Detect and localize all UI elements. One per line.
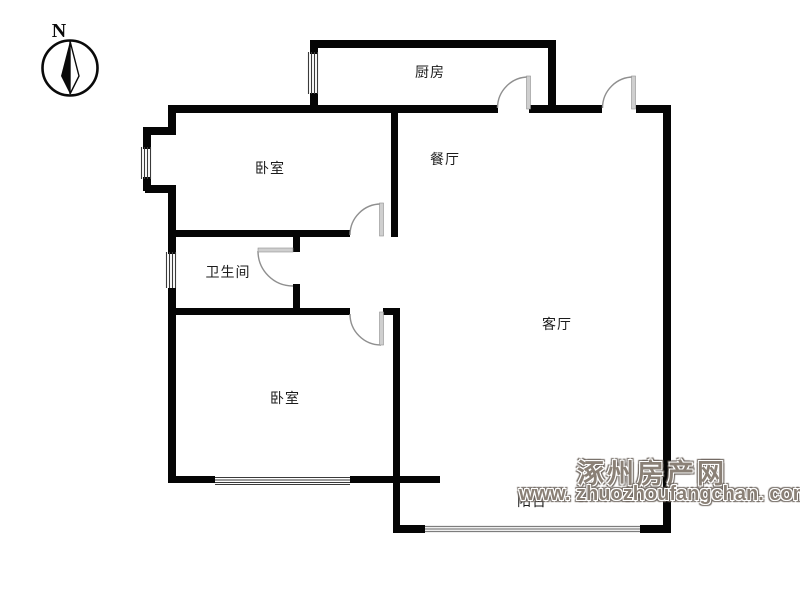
bathroom-door	[258, 248, 293, 286]
wall-kitchen-left-upper	[310, 40, 318, 54]
compass-needle-light-half	[70, 41, 79, 94]
wall-top-middle	[529, 105, 602, 113]
wall-bedroom-top-left-lower	[168, 185, 176, 235]
compass-icon: N	[43, 20, 98, 96]
wall-baywindow-left-upper	[143, 127, 151, 149]
watermark-site-url: www. zhuozhoufangchan. com	[519, 483, 800, 506]
bedroom-top-door	[350, 203, 384, 236]
wall-bathroom-right-lower	[293, 284, 300, 315]
bathroom-window	[167, 252, 176, 288]
entrance-door-leaf	[632, 76, 636, 109]
bedroom-bottom-door	[350, 312, 384, 345]
bedroom-top-bay-window	[142, 147, 151, 179]
balcony-window	[425, 527, 640, 532]
label-kitchen: 厨房	[415, 62, 445, 82]
compass-needle-dark-half	[61, 41, 70, 94]
wall-bathroom-bottom	[168, 308, 350, 315]
compass-north-label: N	[52, 20, 67, 42]
wall-left-lower	[168, 288, 176, 483]
floorplan-drawing: N	[0, 0, 800, 600]
bedroom-bottom-window	[215, 478, 350, 485]
wall-bathroom-right-upper	[293, 230, 300, 252]
wall-bedroom-top-left-upper	[168, 105, 176, 133]
entrance-door	[603, 76, 636, 109]
wall-baywindow-left-lower	[143, 177, 151, 191]
bedroom-bottom-door-leaf	[380, 312, 384, 345]
wall-kitchen-top	[310, 40, 556, 48]
bathroom-door-leaf	[258, 248, 293, 252]
wall-bathroom-left-upper	[168, 230, 176, 254]
bedroom-bottom-door-arc	[350, 314, 381, 345]
bathroom-door-arc	[258, 251, 293, 286]
label-living: 客厅	[542, 314, 572, 334]
label-bedroom-bottom: 卧室	[270, 388, 300, 408]
bedroom-top-door-arc	[350, 204, 381, 235]
wall-kitchen-left-lower	[310, 93, 318, 109]
bedroom-top-door-leaf	[380, 203, 384, 236]
floorplan-page: N	[0, 0, 800, 600]
wall-dining-left	[391, 105, 398, 237]
kitchen-door-arc	[498, 77, 529, 108]
kitchen-door-leaf	[527, 76, 531, 109]
label-bathroom: 卫生间	[206, 262, 251, 282]
kitchen-window	[309, 52, 318, 94]
entrance-door-arc	[603, 77, 634, 108]
wall-bedroom-top-bottom	[168, 230, 350, 237]
wall-living-left	[393, 308, 400, 533]
kitchen-door	[498, 76, 531, 109]
label-dining: 餐厅	[430, 149, 460, 169]
wall-top-left	[168, 105, 498, 113]
label-bedroom-top: 卧室	[255, 158, 285, 178]
wall-kitchen-right	[548, 40, 556, 110]
